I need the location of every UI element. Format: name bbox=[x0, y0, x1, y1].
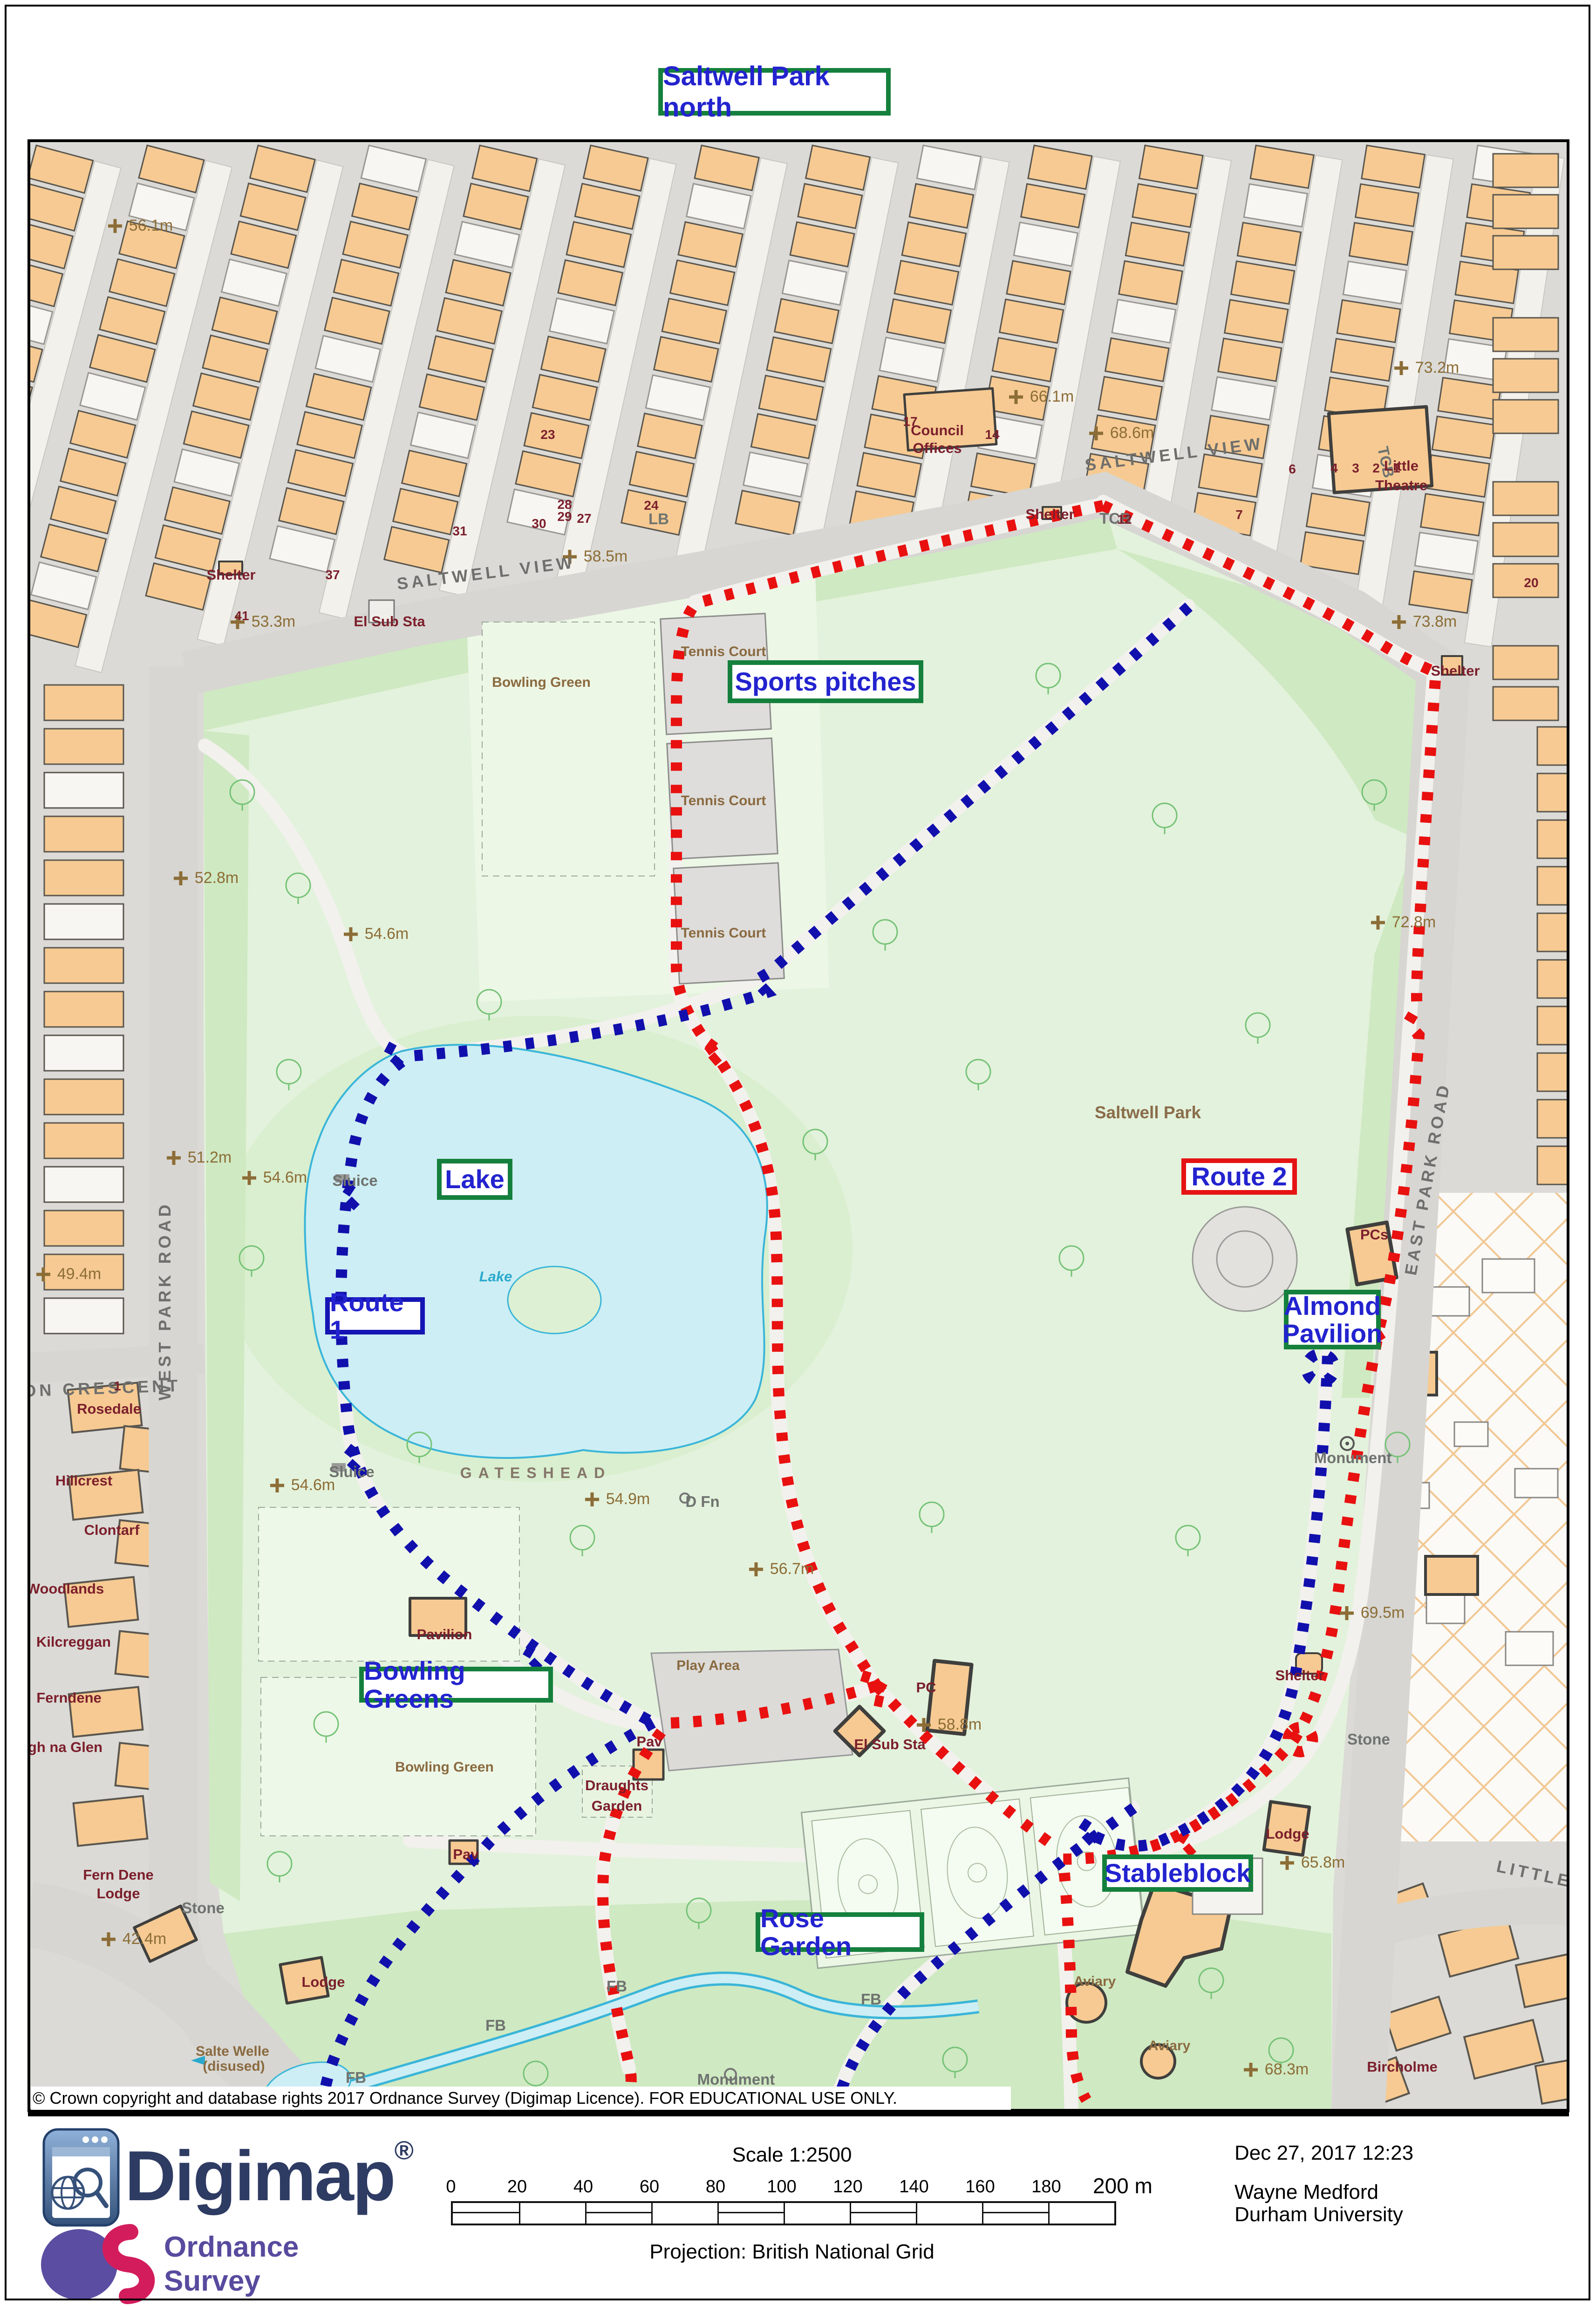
map-label: Aviary bbox=[1148, 2038, 1191, 2053]
map-label: 27 bbox=[577, 511, 591, 526]
house bbox=[1537, 1146, 1568, 1184]
map-label: 49.4m bbox=[57, 1265, 102, 1283]
registered-mark: ® bbox=[395, 2135, 412, 2165]
digimap-wordmark: Digimap® bbox=[125, 2135, 412, 2217]
map-label: Tennis Court bbox=[681, 793, 766, 808]
house bbox=[1537, 1053, 1568, 1091]
house bbox=[44, 948, 123, 983]
map-label: 31 bbox=[452, 524, 467, 538]
scale-tick-label: 60 bbox=[621, 2177, 677, 2197]
map-label: WEST PARK ROAD bbox=[155, 1201, 174, 1400]
map-label: 72.8m bbox=[1392, 913, 1436, 931]
house bbox=[44, 773, 123, 808]
map-label: 4 bbox=[1330, 461, 1338, 475]
house bbox=[1537, 960, 1568, 998]
os-line1: Ordnance bbox=[164, 2230, 299, 2264]
annotation-rose-garden: Rose Garden bbox=[756, 1912, 924, 1952]
house bbox=[44, 904, 123, 939]
house bbox=[1537, 1006, 1568, 1045]
map-label: Fern Dene bbox=[83, 1867, 154, 1883]
scale-tick-label: 0 bbox=[423, 2177, 479, 2197]
scale-tick-label: 120 bbox=[820, 2177, 876, 2197]
map-label: Saltwell Park bbox=[1095, 1103, 1201, 1122]
copyright-text: © Crown copyright and database rights 20… bbox=[33, 2088, 897, 2108]
map-label: 54.6m bbox=[291, 1476, 335, 1494]
map-label: Garden bbox=[592, 1798, 642, 1814]
scale-bar bbox=[451, 2201, 1116, 2225]
house bbox=[1537, 867, 1568, 905]
scale-segment bbox=[916, 2203, 982, 2224]
map-label: Salte Welle bbox=[196, 2044, 269, 2059]
map-label: Council bbox=[911, 422, 964, 438]
map-label: FB bbox=[346, 2069, 366, 2086]
digimap-logo-icon bbox=[42, 2128, 121, 2228]
map-label: Stone bbox=[182, 1899, 225, 1916]
map-label: 51.2m bbox=[188, 1149, 232, 1166]
map-label: 54.9m bbox=[606, 1490, 650, 1508]
map-label: 23 bbox=[540, 427, 555, 442]
map-label: Shelter bbox=[1275, 1667, 1324, 1683]
house bbox=[1493, 359, 1558, 392]
scale-tick-label: 180 bbox=[1018, 2177, 1074, 2197]
scale-segment bbox=[784, 2203, 850, 2224]
map-label: FB bbox=[607, 1978, 627, 1995]
map-label: Lodge bbox=[1266, 1826, 1310, 1842]
scale-tick-label: 100 bbox=[754, 2177, 810, 2197]
annotation-line: Bowling Greens bbox=[364, 1657, 548, 1712]
map-label: 69.5m bbox=[1361, 1604, 1405, 1622]
export-org: Durham University bbox=[1235, 2203, 1403, 2226]
annotation-almond-pavilion: AlmondPavilion bbox=[1284, 1290, 1381, 1349]
scale-tick-label: 160 bbox=[952, 2177, 1008, 2197]
map-label: Pav bbox=[636, 1733, 662, 1750]
map-title: Saltwell Park north bbox=[658, 68, 891, 116]
house bbox=[1493, 687, 1558, 720]
lake-island bbox=[508, 1266, 601, 1334]
scale-segment bbox=[982, 2203, 1048, 2224]
map-label: 66.1m bbox=[1030, 388, 1074, 405]
map-label: El Sub Sta bbox=[854, 1736, 926, 1752]
map-label: 14 bbox=[985, 427, 1000, 442]
scale-segment bbox=[850, 2203, 916, 2224]
map-label: 56.7m bbox=[770, 1560, 814, 1578]
map-label: PCs bbox=[1360, 1226, 1388, 1243]
map-label: Draughts bbox=[585, 1777, 648, 1793]
map-label: Pavilion bbox=[417, 1626, 472, 1642]
export-date: Dec 27, 2017 12:23 bbox=[1235, 2142, 1413, 2165]
map-label: 53.3m bbox=[252, 613, 296, 630]
house bbox=[74, 1796, 148, 1846]
map-label: Bircholme bbox=[1367, 2059, 1438, 2075]
map-label: Sluice bbox=[332, 1172, 377, 1189]
map-label: Offices bbox=[913, 440, 962, 456]
house bbox=[1493, 236, 1558, 269]
map-label: LB bbox=[648, 510, 669, 527]
map-label: Play Area bbox=[676, 1658, 740, 1673]
map-label: Lodge bbox=[97, 1885, 140, 1902]
house bbox=[1493, 646, 1558, 679]
lake bbox=[305, 1045, 767, 1458]
house bbox=[1537, 1100, 1568, 1138]
map-label: Little bbox=[1384, 458, 1419, 474]
copyright-strip: © Crown copyright and database rights 20… bbox=[31, 2087, 1011, 2110]
annotation-sports-pitches: Sports pitches bbox=[728, 660, 923, 703]
map-label: Bowling Green bbox=[395, 1759, 494, 1775]
map-label: 24 bbox=[644, 498, 659, 513]
os-line2: Survey bbox=[164, 2264, 299, 2298]
house bbox=[1537, 773, 1568, 812]
annotation-lake: Lake bbox=[437, 1159, 512, 1200]
house bbox=[44, 1167, 123, 1202]
map-label: Monument bbox=[1314, 1449, 1392, 1466]
map-label: 68.3m bbox=[1265, 2060, 1309, 2078]
house bbox=[1493, 523, 1558, 556]
house bbox=[1493, 482, 1558, 515]
map-label: El Sub Sta bbox=[354, 613, 425, 630]
annotation-line: Almond bbox=[1284, 1292, 1381, 1320]
annotation-line: Rose Garden bbox=[760, 1904, 920, 1960]
map-label: GATESHEAD bbox=[460, 1464, 612, 1481]
map-label: Shelter bbox=[1025, 506, 1074, 522]
house bbox=[1493, 318, 1558, 351]
scale-label: Scale 1:2500 bbox=[652, 2143, 932, 2167]
scale-tick-label: 80 bbox=[688, 2177, 743, 2197]
map-label: 3 bbox=[1352, 461, 1359, 475]
map-label: FB bbox=[861, 1991, 881, 2008]
scale-unit-label: 200 m bbox=[1093, 2173, 1153, 2198]
map-label: D Fn bbox=[685, 1493, 719, 1510]
scale-tick-label: 140 bbox=[886, 2177, 942, 2197]
map-label: Pav bbox=[453, 1846, 479, 1862]
map-label: 37 bbox=[325, 568, 340, 582]
map-label: Ferndene bbox=[36, 1690, 102, 1706]
map-label: 52.8m bbox=[195, 869, 239, 887]
map-label: 30 bbox=[532, 516, 546, 531]
map-label: 65.8m bbox=[1301, 1854, 1345, 1871]
house bbox=[44, 816, 123, 852]
map-label: Kilcreggan bbox=[36, 1634, 111, 1650]
map-label: 42.4m bbox=[123, 1930, 167, 1948]
map-label: 56.1m bbox=[129, 217, 173, 234]
map-title-text: Saltwell Park north bbox=[663, 61, 886, 123]
map-label: Tennis Court bbox=[681, 644, 766, 659]
map-label: Monument bbox=[697, 2071, 775, 2088]
map-label: 6 bbox=[1289, 462, 1296, 476]
map-label: 1 bbox=[114, 1379, 121, 1393]
annotation-line: Stableblock bbox=[1105, 1859, 1251, 1887]
house bbox=[44, 860, 123, 896]
map-label: gh na Glen bbox=[28, 1739, 102, 1755]
map-label: 41 bbox=[234, 609, 249, 623]
house bbox=[1493, 154, 1558, 187]
map-label: 2 bbox=[1372, 461, 1380, 475]
ordnance-survey-logo bbox=[39, 2222, 170, 2306]
scale-tick-label: 20 bbox=[489, 2177, 545, 2197]
export-user: Wayne Medford bbox=[1235, 2181, 1378, 2204]
map-label: FB bbox=[485, 2017, 506, 2034]
map-label: 28 bbox=[557, 497, 572, 512]
annotation-route-2: Route 2 bbox=[1181, 1158, 1297, 1195]
house bbox=[1537, 820, 1568, 858]
scale-segment bbox=[651, 2203, 717, 2224]
house bbox=[44, 729, 123, 764]
scale-segment bbox=[585, 2203, 651, 2224]
house bbox=[1493, 195, 1558, 228]
map-label: Woodlands bbox=[27, 1581, 104, 1597]
house bbox=[44, 1211, 123, 1246]
house bbox=[44, 1035, 123, 1071]
map-label: 12 bbox=[1117, 512, 1132, 527]
house bbox=[44, 1123, 123, 1158]
house bbox=[44, 992, 123, 1027]
scale-segment bbox=[1048, 2203, 1114, 2224]
projection-label: Projection: British National Grid bbox=[620, 2240, 964, 2264]
map-label: 54.6m bbox=[263, 1169, 307, 1186]
map-label: 68.6m bbox=[1110, 424, 1154, 442]
map-label: Bowling Green bbox=[492, 675, 591, 690]
map-label: Aviary bbox=[1074, 1974, 1116, 1989]
map-label: Rosedale bbox=[77, 1401, 141, 1417]
house bbox=[44, 1298, 123, 1334]
map-label: Tennis Court bbox=[681, 925, 766, 941]
map-label: PC bbox=[916, 1679, 936, 1696]
house bbox=[1537, 727, 1568, 765]
map-label: 73.2m bbox=[1415, 359, 1460, 376]
annotation-route-1: Route 1 bbox=[325, 1297, 425, 1334]
annotation-line: Route 2 bbox=[1191, 1163, 1287, 1190]
map-label: (disused) bbox=[203, 2059, 265, 2074]
house bbox=[44, 685, 123, 720]
map-label: 1 bbox=[1393, 461, 1400, 475]
annotation-line: Pavilion bbox=[1282, 1320, 1383, 1347]
map-bottom-border bbox=[28, 2109, 1569, 2116]
house bbox=[1537, 913, 1568, 951]
map-label: 73.8m bbox=[1413, 613, 1457, 630]
map-label: Shelter bbox=[206, 567, 255, 583]
house bbox=[1493, 400, 1558, 433]
annotation-line: Sports pitches bbox=[735, 668, 916, 695]
map-label: 54.6m bbox=[365, 925, 409, 943]
map-label: Stone bbox=[1347, 1731, 1390, 1748]
annotation-line: Route 1 bbox=[330, 1288, 420, 1344]
scale-segment bbox=[717, 2203, 784, 2224]
annotation-bowling-greens: Bowling Greens bbox=[359, 1667, 553, 1703]
map-label: 20 bbox=[1524, 575, 1538, 590]
annotation-stableblock: Stableblock bbox=[1102, 1854, 1253, 1892]
house bbox=[44, 1079, 123, 1115]
map-label: Sluice bbox=[329, 1463, 374, 1480]
scale-segment bbox=[519, 2203, 585, 2224]
annotation-line: Lake bbox=[445, 1165, 505, 1193]
map-label: Clontarf bbox=[84, 1522, 140, 1538]
scale-segment bbox=[453, 2203, 519, 2224]
map-label: 17 bbox=[903, 414, 917, 429]
map-label: 58.5m bbox=[584, 547, 628, 565]
map-label: Shelter bbox=[1431, 663, 1480, 679]
map-label: Hillcrest bbox=[55, 1472, 112, 1489]
map-label: Lake bbox=[479, 1268, 512, 1285]
map-label: 58.8m bbox=[938, 1716, 982, 1733]
map-label: Lodge bbox=[302, 1974, 345, 1990]
map-label: 7 bbox=[1235, 507, 1243, 522]
digimap-text: Digimap bbox=[125, 2136, 395, 2216]
scale-tick-label: 40 bbox=[555, 2177, 611, 2197]
map-label: Theatre bbox=[1375, 477, 1427, 493]
ordnance-survey-wordmark: Ordnance Survey bbox=[164, 2230, 299, 2298]
